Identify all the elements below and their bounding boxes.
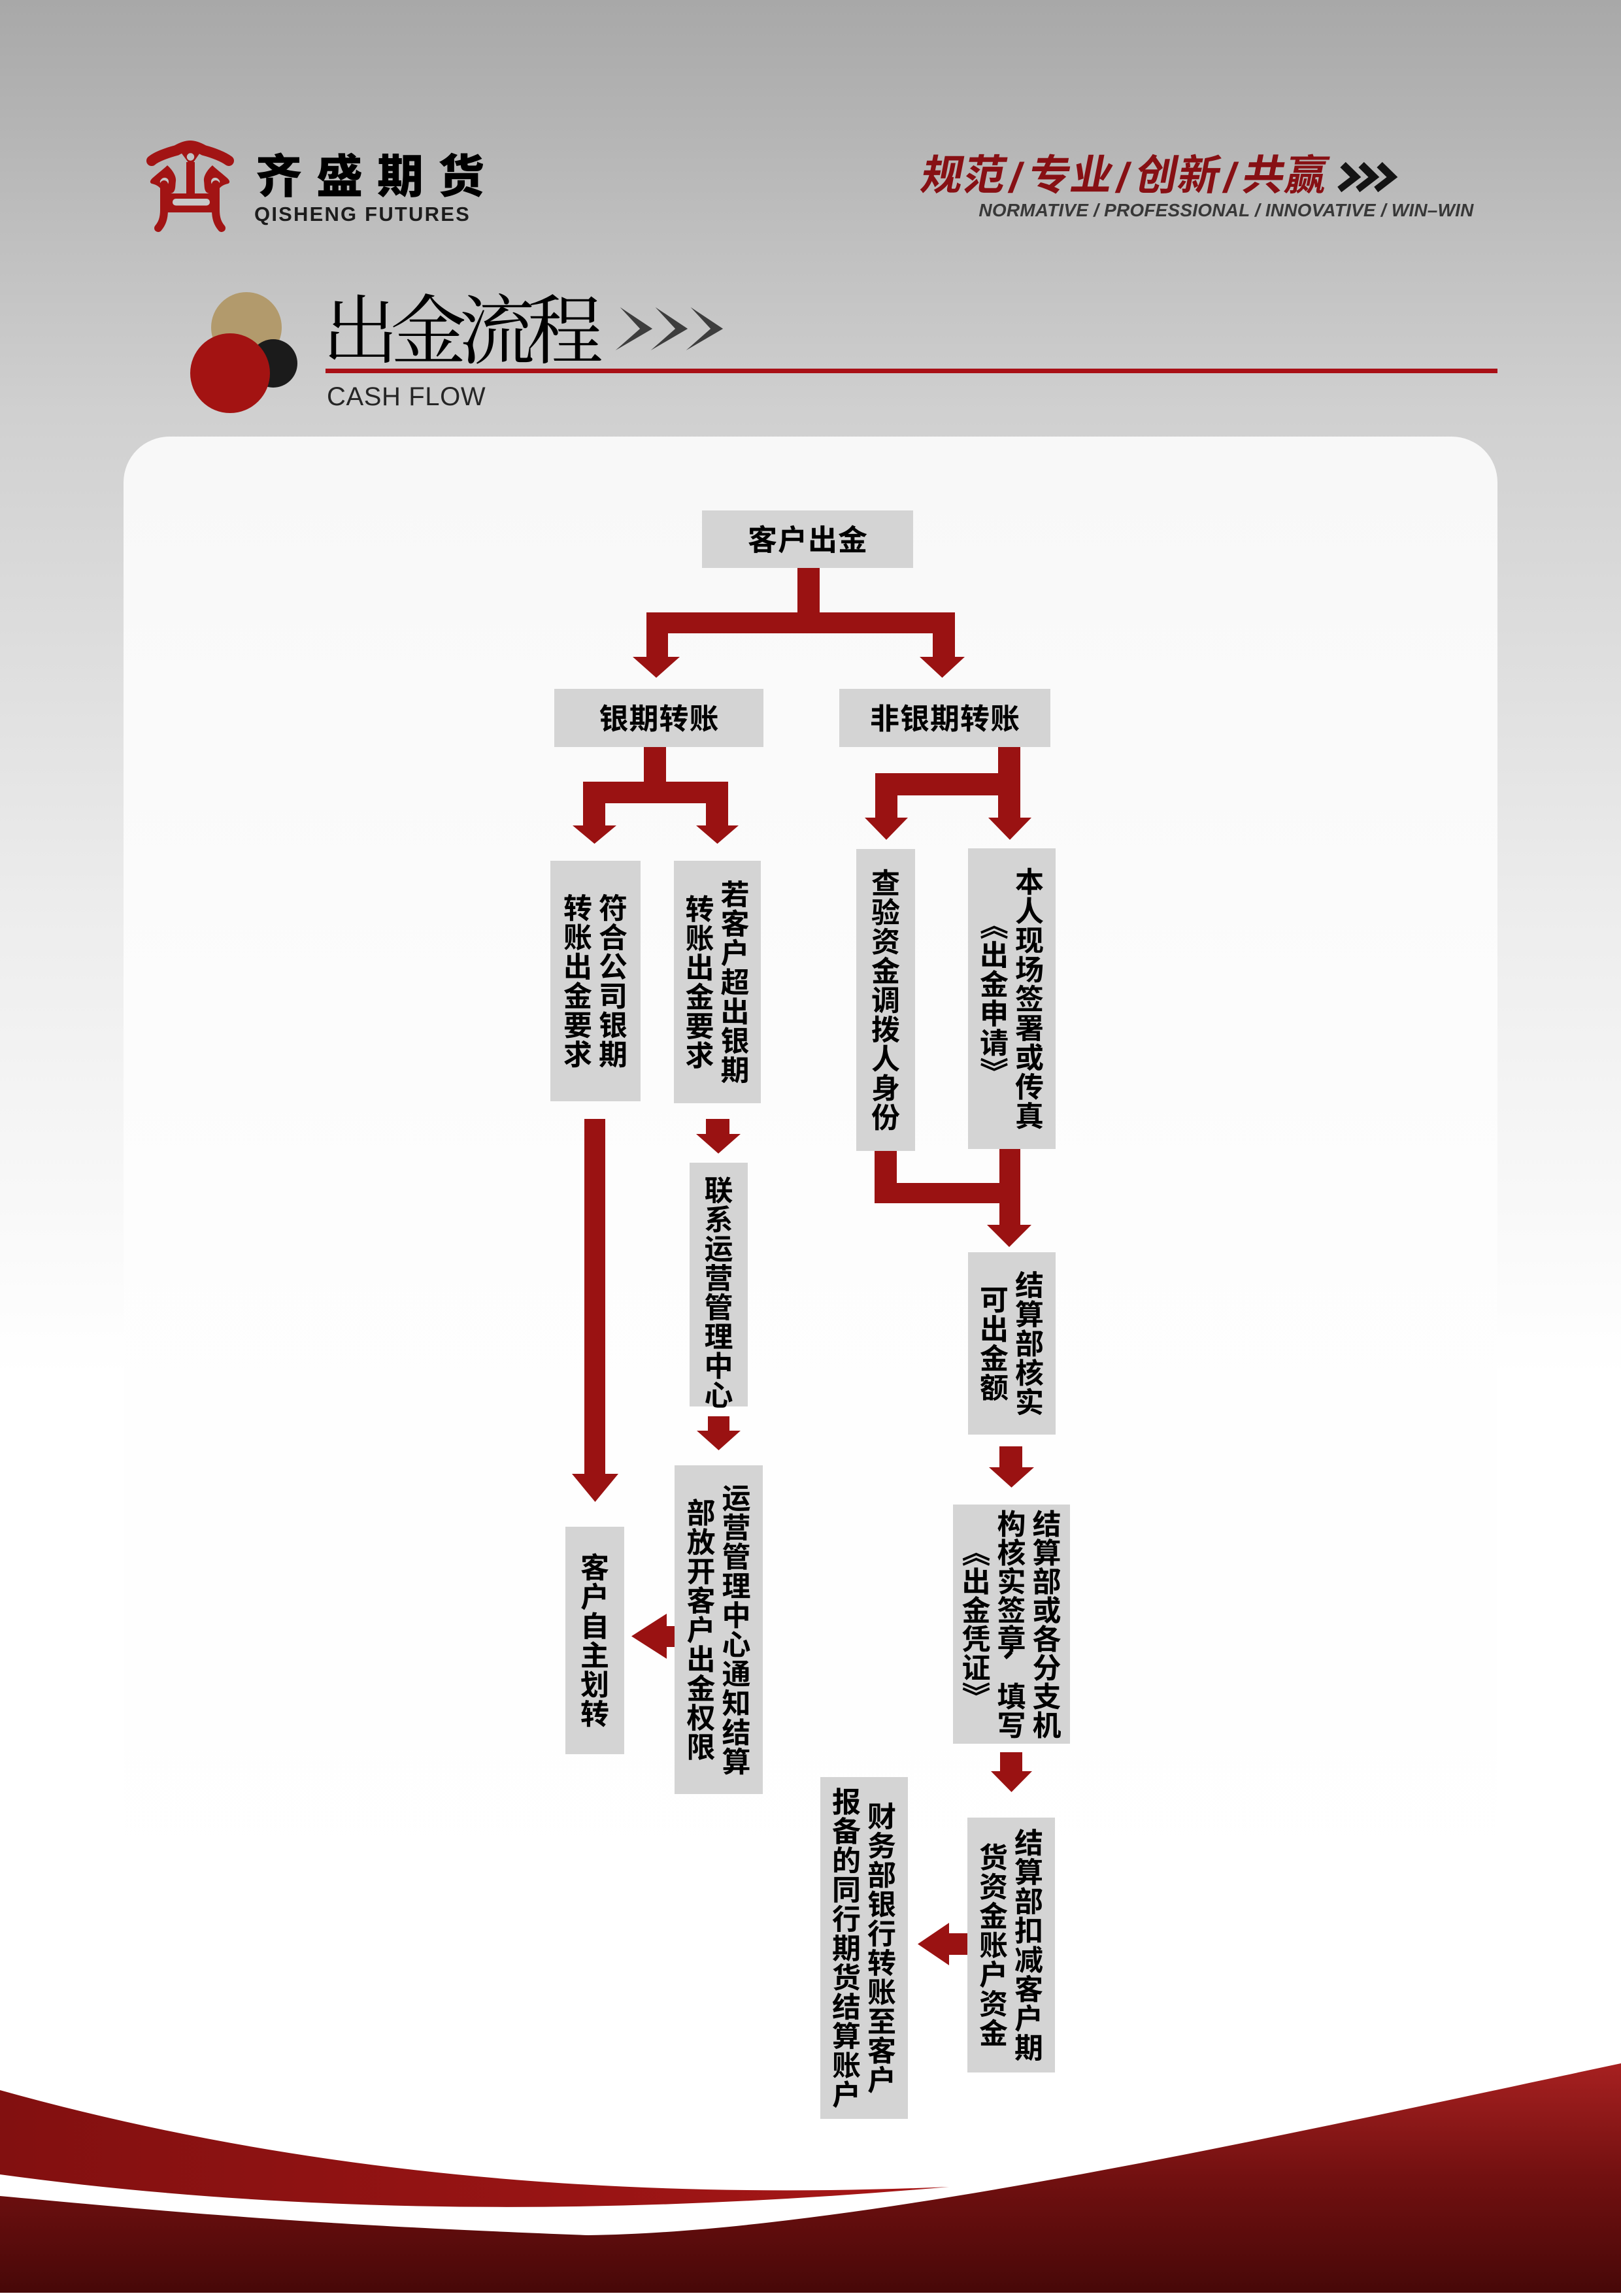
svg-text:CASH FLOW: CASH FLOW [327, 382, 486, 411]
svg-text:QISHENG FUTURES: QISHENG FUTURES [254, 203, 471, 225]
svg-text:NORMATIVE / PROFESSIONAL / INN: NORMATIVE / PROFESSIONAL / INNOVATIVE / … [978, 200, 1474, 220]
